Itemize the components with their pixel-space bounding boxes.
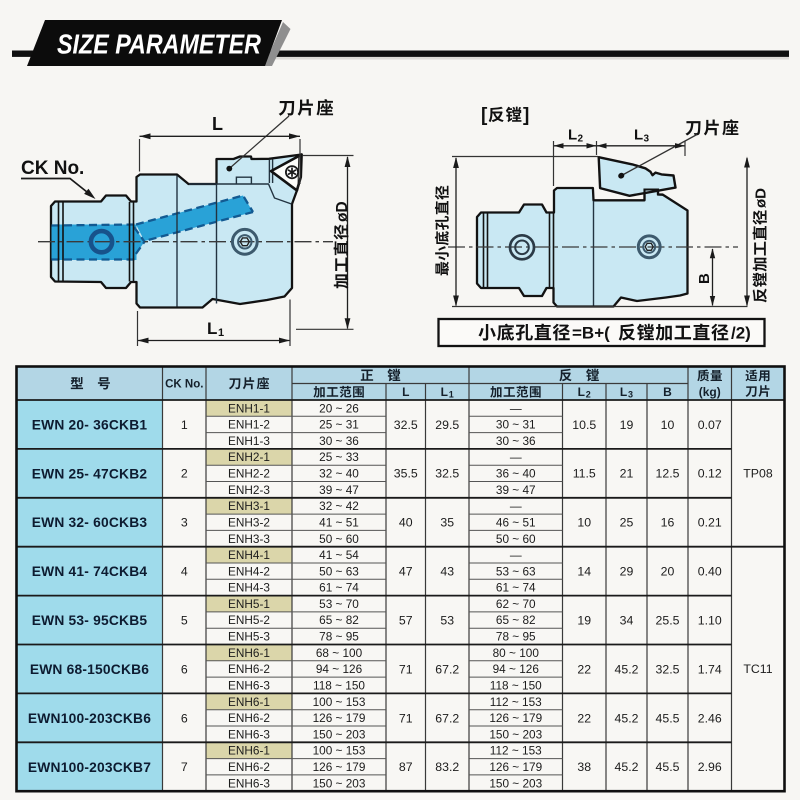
svg-text:83.2: 83.2	[435, 760, 459, 774]
svg-text:TP08: TP08	[743, 467, 773, 481]
svg-text:EWN 41- 74CKB4: EWN 41- 74CKB4	[32, 564, 148, 579]
svg-text:ENH6-3: ENH6-3	[228, 679, 270, 693]
svg-text:87: 87	[399, 760, 413, 774]
svg-text:41 ~ 54: 41 ~ 54	[319, 548, 359, 562]
svg-text:0.21: 0.21	[698, 516, 722, 530]
svg-text:EWN 53- 95CKB5: EWN 53- 95CKB5	[32, 613, 148, 628]
svg-text:TC11: TC11	[743, 662, 772, 676]
svg-text:ENH6-1: ENH6-1	[228, 695, 270, 709]
svg-text:50 ~ 60: 50 ~ 60	[496, 532, 536, 546]
svg-text:L: L	[212, 114, 223, 134]
svg-text:EWN 68-150CKB6: EWN 68-150CKB6	[30, 662, 149, 677]
svg-text:—: —	[510, 450, 522, 464]
svg-text:6: 6	[181, 662, 188, 676]
svg-text:0.07: 0.07	[698, 418, 722, 432]
svg-text:71: 71	[399, 662, 413, 676]
svg-text:29: 29	[620, 565, 634, 579]
svg-text:150 ~ 203: 150 ~ 203	[489, 727, 542, 741]
svg-text:61 ~ 74: 61 ~ 74	[319, 581, 359, 595]
svg-text:50 ~ 63: 50 ~ 63	[319, 564, 359, 578]
svg-text:25 ~ 33: 25 ~ 33	[319, 450, 359, 464]
svg-text:ENH5-3: ENH5-3	[228, 630, 270, 644]
svg-text:118 ~ 150: 118 ~ 150	[313, 679, 365, 693]
svg-text:(kg): (kg)	[699, 385, 721, 399]
svg-text:2: 2	[586, 390, 591, 400]
svg-text:78 ~ 95: 78 ~ 95	[319, 630, 359, 644]
svg-text:61 ~ 74: 61 ~ 74	[496, 581, 536, 595]
svg-text:ENH1-1: ENH1-1	[228, 401, 270, 415]
svg-text:3: 3	[181, 516, 188, 530]
svg-text:1.10: 1.10	[698, 614, 722, 628]
svg-text:41 ~ 51: 41 ~ 51	[319, 516, 359, 530]
svg-text:22: 22	[577, 711, 591, 725]
svg-text:ENH3-3: ENH3-3	[228, 532, 270, 546]
svg-text:øD: øD	[334, 201, 351, 222]
svg-text:ENH2-2: ENH2-2	[228, 467, 270, 481]
svg-text:32 ~ 42: 32 ~ 42	[319, 499, 359, 513]
svg-text:5: 5	[181, 614, 188, 628]
svg-text:ENH1-2: ENH1-2	[228, 418, 270, 432]
svg-text:53: 53	[440, 614, 454, 628]
svg-text:ENH6-2: ENH6-2	[228, 662, 270, 676]
svg-text:80 ~ 100: 80 ~ 100	[493, 646, 540, 660]
svg-text:20 ~ 26: 20 ~ 26	[319, 401, 359, 415]
svg-text:2.46: 2.46	[698, 711, 722, 725]
svg-text:1: 1	[218, 327, 224, 339]
svg-text:2: 2	[578, 134, 584, 145]
svg-text:112 ~ 153: 112 ~ 153	[490, 744, 542, 758]
svg-text:ENH6-3: ENH6-3	[228, 776, 270, 790]
svg-text:ENH6-2: ENH6-2	[228, 711, 270, 725]
svg-text:30 ~ 36: 30 ~ 36	[496, 434, 536, 448]
svg-text:150 ~ 203: 150 ~ 203	[489, 776, 542, 790]
svg-text:1: 1	[181, 418, 188, 432]
svg-text:39 ~ 47: 39 ~ 47	[319, 483, 359, 497]
svg-text:20: 20	[661, 565, 675, 579]
svg-text:7: 7	[181, 760, 188, 774]
svg-text:L: L	[568, 127, 577, 144]
svg-text:45.2: 45.2	[615, 760, 639, 774]
svg-text:ENH6-1: ENH6-1	[228, 744, 270, 758]
svg-text:3: 3	[644, 134, 650, 145]
svg-text:SIZE PARAMETER: SIZE PARAMETER	[57, 29, 262, 60]
svg-text:34: 34	[620, 614, 634, 628]
svg-text:12.5: 12.5	[656, 467, 680, 481]
svg-text:47: 47	[399, 565, 413, 579]
svg-text:45.2: 45.2	[615, 662, 639, 676]
svg-text:126 ~ 179: 126 ~ 179	[313, 760, 366, 774]
svg-text:4: 4	[181, 565, 188, 579]
svg-text:—: —	[510, 548, 522, 562]
svg-text:39 ~ 47: 39 ~ 47	[496, 483, 536, 497]
svg-text:126 ~ 179: 126 ~ 179	[489, 711, 542, 725]
svg-text:30 ~ 36: 30 ~ 36	[319, 434, 359, 448]
svg-text:38: 38	[577, 760, 591, 774]
svg-text:L: L	[402, 385, 409, 399]
svg-text:118 ~ 150: 118 ~ 150	[490, 679, 542, 693]
svg-text:30 ~ 31: 30 ~ 31	[496, 418, 536, 432]
svg-text:35: 35	[440, 516, 454, 530]
svg-text:0.12: 0.12	[698, 467, 722, 481]
svg-text:ENH6-1: ENH6-1	[228, 646, 270, 660]
svg-text:29.5: 29.5	[435, 418, 459, 432]
svg-text:—: —	[510, 401, 522, 415]
svg-text:22: 22	[577, 662, 591, 676]
svg-text:40: 40	[399, 516, 413, 530]
svg-text:EWN 20- 36CKB1: EWN 20- 36CKB1	[32, 417, 148, 432]
svg-text:ENH1-3: ENH1-3	[228, 434, 270, 448]
svg-text:14: 14	[577, 565, 591, 579]
svg-text:0.40: 0.40	[698, 565, 722, 579]
svg-text:2: 2	[181, 467, 188, 481]
svg-text:øD: øD	[753, 188, 770, 208]
svg-text:65 ~ 82: 65 ~ 82	[319, 613, 359, 627]
svg-text:94 ~ 126: 94 ~ 126	[316, 662, 363, 676]
svg-text:—: —	[510, 499, 522, 513]
svg-text:94 ~ 126: 94 ~ 126	[493, 662, 540, 676]
svg-text:ENH3-1: ENH3-1	[228, 499, 270, 513]
svg-text:L: L	[620, 385, 627, 399]
svg-text:]: ]	[523, 105, 529, 126]
svg-text:32.5: 32.5	[656, 662, 680, 676]
svg-text:10: 10	[577, 516, 591, 530]
svg-text:25.5: 25.5	[656, 614, 680, 628]
svg-text:150 ~ 203: 150 ~ 203	[313, 776, 366, 790]
svg-text:65 ~ 82: 65 ~ 82	[496, 613, 536, 627]
svg-text:B: B	[663, 385, 672, 399]
svg-text:71: 71	[399, 711, 413, 725]
svg-text:19: 19	[577, 614, 591, 628]
svg-text:35.5: 35.5	[394, 467, 418, 481]
svg-text:EWN100-203CKB6: EWN100-203CKB6	[28, 711, 151, 726]
svg-text:100 ~ 153: 100 ~ 153	[313, 744, 366, 758]
svg-text:10.5: 10.5	[572, 418, 596, 432]
svg-text:[: [	[481, 105, 488, 126]
svg-text:L: L	[578, 385, 585, 399]
svg-text:68 ~ 100: 68 ~ 100	[316, 646, 363, 660]
svg-text:CK No.: CK No.	[165, 379, 203, 391]
svg-text:16: 16	[661, 516, 675, 530]
svg-text:25 ~ 31: 25 ~ 31	[319, 418, 359, 432]
svg-text:3: 3	[628, 390, 633, 400]
svg-text:L: L	[634, 127, 643, 144]
svg-text:19: 19	[620, 418, 634, 432]
svg-text:45.5: 45.5	[656, 760, 680, 774]
svg-text:126 ~ 179: 126 ~ 179	[313, 711, 366, 725]
svg-text:EWN 25- 47CKB2: EWN 25- 47CKB2	[32, 466, 148, 481]
svg-text:B: B	[696, 273, 713, 284]
svg-text:ENH6-3: ENH6-3	[228, 727, 270, 741]
svg-text:ENH5-2: ENH5-2	[228, 613, 270, 627]
svg-text:67.2: 67.2	[435, 711, 459, 725]
svg-text:45.2: 45.2	[615, 711, 639, 725]
svg-text:21: 21	[620, 467, 634, 481]
svg-text:6: 6	[181, 711, 188, 725]
svg-text:53 ~ 70: 53 ~ 70	[319, 597, 359, 611]
svg-text:ENH4-3: ENH4-3	[228, 581, 270, 595]
svg-text:ENH5-1: ENH5-1	[228, 597, 270, 611]
svg-text:78 ~ 95: 78 ~ 95	[496, 630, 536, 644]
svg-text:ENH3-2: ENH3-2	[228, 516, 270, 530]
svg-text:57: 57	[399, 614, 413, 628]
svg-text:L: L	[441, 385, 448, 399]
svg-text:43: 43	[440, 565, 454, 579]
svg-text:25: 25	[620, 516, 634, 530]
svg-text:46 ~ 51: 46 ~ 51	[496, 516, 536, 530]
svg-text:62 ~ 70: 62 ~ 70	[496, 597, 536, 611]
svg-text:150 ~ 203: 150 ~ 203	[313, 727, 366, 741]
svg-text:ENH4-2: ENH4-2	[228, 564, 270, 578]
svg-text:ENH2-1: ENH2-1	[228, 450, 270, 464]
svg-text:EWN 32- 60CKB3: EWN 32- 60CKB3	[32, 515, 148, 530]
svg-text:32.5: 32.5	[394, 418, 418, 432]
svg-text:EWN100-203CKB7: EWN100-203CKB7	[28, 760, 151, 775]
svg-text:/2): /2)	[731, 324, 751, 343]
svg-text:112 ~ 153: 112 ~ 153	[490, 695, 542, 709]
svg-text:53 ~ 63: 53 ~ 63	[496, 564, 536, 578]
svg-text:L: L	[207, 319, 217, 338]
svg-text:36 ~ 40: 36 ~ 40	[496, 467, 536, 481]
svg-text:ENH4-1: ENH4-1	[228, 548, 270, 562]
svg-text:126 ~ 179: 126 ~ 179	[489, 760, 542, 774]
svg-text:CK No.: CK No.	[21, 158, 84, 179]
svg-text:1.74: 1.74	[698, 662, 722, 676]
svg-text:100 ~ 153: 100 ~ 153	[313, 695, 366, 709]
svg-text:50 ~ 60: 50 ~ 60	[319, 532, 359, 546]
svg-text:1: 1	[449, 390, 454, 400]
svg-text:=B+(: =B+(	[572, 324, 610, 343]
svg-text:45.5: 45.5	[656, 711, 680, 725]
svg-text:67.2: 67.2	[435, 662, 459, 676]
svg-text:2.96: 2.96	[698, 760, 722, 774]
svg-text:ENH2-3: ENH2-3	[228, 483, 270, 497]
svg-text:ENH6-2: ENH6-2	[228, 760, 270, 774]
svg-text:10: 10	[661, 418, 675, 432]
svg-text:32 ~ 40: 32 ~ 40	[319, 467, 359, 481]
svg-text:11.5: 11.5	[573, 467, 596, 481]
svg-text:32.5: 32.5	[435, 467, 459, 481]
